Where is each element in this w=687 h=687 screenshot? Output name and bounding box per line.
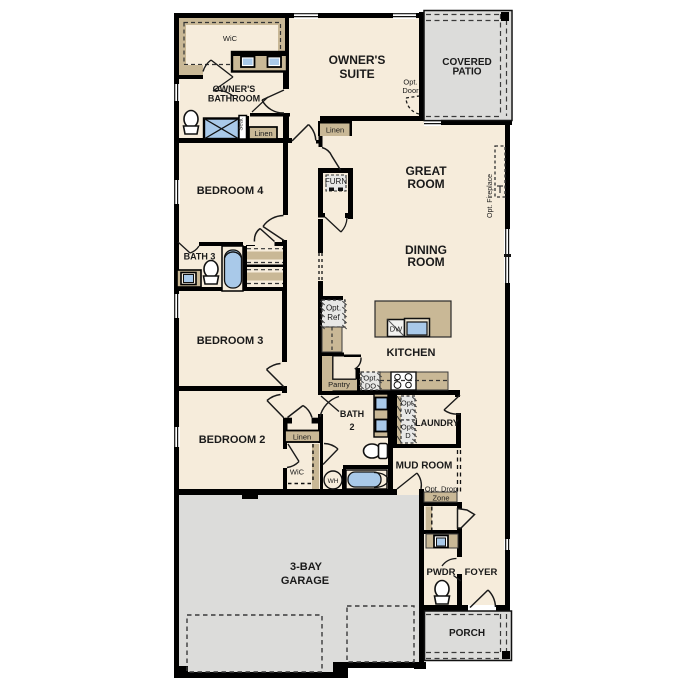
svg-text:FOYER: FOYER [465,567,498,578]
svg-text:3-BAY: 3-BAY [290,561,323,573]
svg-text:D: D [405,431,411,440]
svg-text:BEDROOM 4: BEDROOM 4 [197,185,265,197]
svg-text:ROOM: ROOM [407,255,444,269]
svg-text:Opt. Fireplace: Opt. Fireplace [487,174,494,218]
svg-text:PWDR: PWDR [426,567,455,578]
svg-text:ROOM: ROOM [407,177,444,191]
svg-text:DW: DW [390,325,403,334]
svg-text:2: 2 [349,422,354,432]
svg-text:SUITE: SUITE [339,67,374,81]
svg-text:LAUNDRY: LAUNDRY [415,418,459,428]
svg-text:BATHROOM: BATHROOM [208,94,260,104]
svg-text:OWNER'S: OWNER'S [329,53,386,67]
svg-text:Linen: Linen [254,129,272,138]
svg-text:WH: WH [328,478,339,485]
svg-text:WiC: WiC [223,34,238,43]
svg-text:DO: DO [365,382,376,391]
svg-text:W: W [404,407,412,416]
svg-text:Linen: Linen [293,433,311,442]
svg-text:BEDROOM 2: BEDROOM 2 [199,434,266,446]
svg-text:Seat: Seat [239,118,245,131]
svg-text:BATH 3: BATH 3 [184,252,216,262]
svg-text:Door: Door [402,86,419,95]
svg-text:Linen: Linen [326,126,344,135]
svg-text:GREAT: GREAT [405,164,447,178]
svg-text:Ref: Ref [327,313,340,322]
svg-text:WiC: WiC [290,468,305,477]
svg-text:Opt. Drop: Opt. Drop [425,485,458,494]
svg-text:BATH: BATH [340,409,364,419]
svg-text:KITCHEN: KITCHEN [387,347,436,359]
svg-text:MUD ROOM: MUD ROOM [396,461,453,472]
svg-text:GARAGE: GARAGE [281,575,329,587]
svg-text:BEDROOM 3: BEDROOM 3 [197,335,264,347]
svg-text:OWNER'S: OWNER'S [213,84,256,94]
svg-text:Pantry: Pantry [328,380,350,389]
svg-text:PORCH: PORCH [449,628,485,639]
svg-text:FURN: FURN [325,177,347,186]
svg-text:Opt.: Opt. [326,304,341,313]
svg-text:Zone: Zone [432,494,449,503]
svg-text:PATIO: PATIO [452,67,481,78]
